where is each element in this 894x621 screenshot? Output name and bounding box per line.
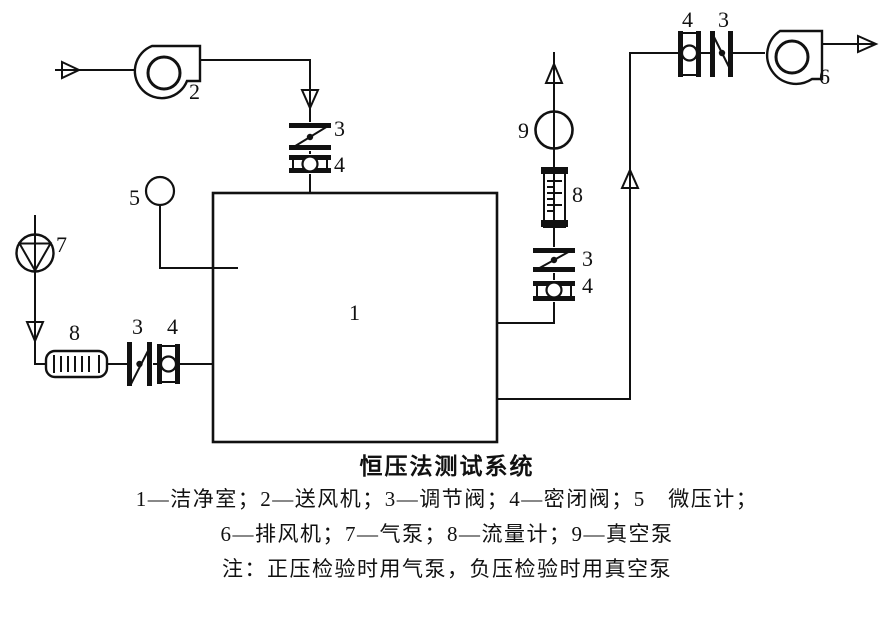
- figure-title: 恒压法测试系统: [0, 452, 894, 482]
- supply-fan-symbol: 2: [135, 46, 200, 104]
- label-air-pump: 7: [56, 232, 67, 257]
- regulating-valve-top: 3: [289, 116, 345, 151]
- label-regulating-valve-left: 3: [132, 314, 143, 339]
- figure-note: 注：正压检验时用气泵，负压检验时用真空泵: [0, 552, 894, 587]
- regulating-valve-right: 3: [533, 246, 593, 273]
- label-regulating-valve-top: 3: [334, 116, 345, 141]
- label-micro-manometer: 5: [129, 185, 140, 210]
- flow-meter-left: 8: [46, 320, 107, 377]
- label-supply-fan: 2: [189, 79, 200, 104]
- label-regulating-valve-exhaust: 3: [718, 7, 729, 32]
- sealed-valve-exhaust: 4: [678, 7, 701, 77]
- regulating-valve-exhaust: 3: [710, 7, 733, 77]
- air-pump-symbol: 7: [17, 232, 68, 272]
- label-cleanroom: 1: [349, 300, 360, 325]
- caption-block: 恒压法测试系统 1—洁净室；2—送风机；3—调节阀；4—密闭阀；5 微压计； 6…: [0, 452, 894, 587]
- label-regulating-valve-right: 3: [582, 246, 593, 271]
- sealed-valve-right: 4: [533, 273, 593, 302]
- exhaust-fan-symbol: 6: [767, 31, 830, 89]
- figure-page: 1 2 3 4 5 7 8: [0, 0, 894, 621]
- label-flow-meter-right: 8: [572, 182, 583, 207]
- label-sealed-valve-exhaust: 4: [682, 7, 693, 32]
- sealed-valve-left: 4: [157, 314, 180, 384]
- label-flow-meter-left: 8: [69, 320, 80, 345]
- sealed-valve-top: 4: [289, 152, 345, 177]
- regulating-valve-left: 3: [127, 314, 153, 386]
- clean-room-box: 1: [213, 193, 497, 442]
- vacuum-pump-symbol: 9: [518, 112, 573, 149]
- flow-meter-right: 8: [541, 167, 583, 227]
- label-exhaust-fan: 6: [819, 64, 830, 89]
- legend-line-1: 1—洁净室；2—送风机；3—调节阀；4—密闭阀；5 微压计；: [0, 482, 894, 517]
- label-sealed-valve-right: 4: [582, 273, 593, 298]
- label-sealed-valve-left: 4: [167, 314, 178, 339]
- micro-manometer-symbol: 5: [129, 177, 174, 210]
- schematic-canvas: 1 2 3 4 5 7 8: [0, 0, 894, 450]
- label-vacuum-pump: 9: [518, 118, 529, 143]
- legend-line-2: 6—排风机；7—气泵；8—流量计；9—真空泵: [0, 517, 894, 552]
- label-sealed-valve-top: 4: [334, 152, 345, 177]
